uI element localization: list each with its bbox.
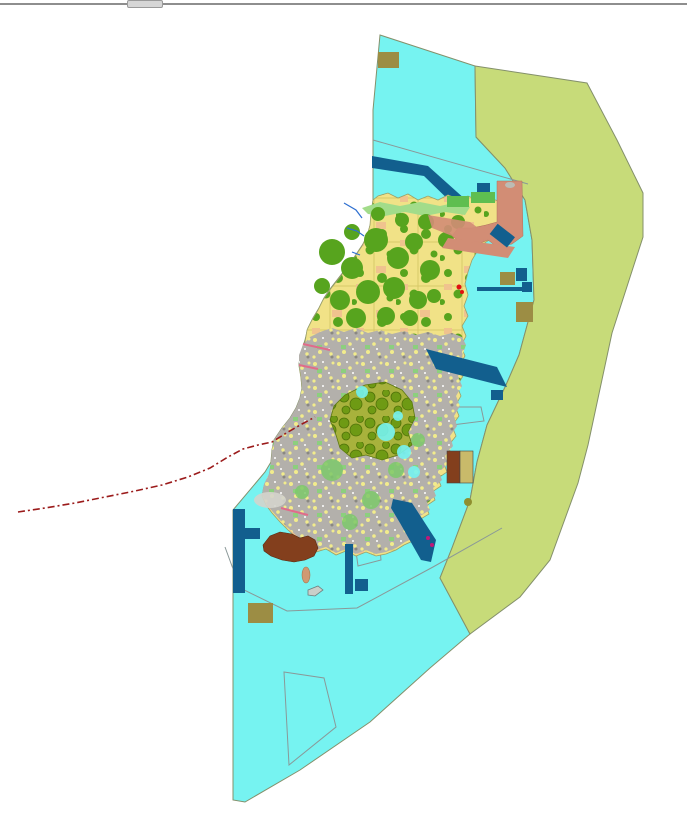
fishpond-inlets xyxy=(397,445,411,459)
park-rect-b xyxy=(471,192,495,203)
green-patches-south xyxy=(411,433,425,447)
tidal-flat-west xyxy=(254,492,286,508)
gray-blob-salmon xyxy=(505,182,515,188)
olive-dot xyxy=(464,498,472,506)
green-patches-south xyxy=(362,491,380,509)
forest-patches-north xyxy=(356,280,380,304)
screenshot-root xyxy=(0,0,687,821)
park-rect-a xyxy=(447,196,469,207)
forest-patches-north xyxy=(330,290,350,310)
harbor-block-e xyxy=(522,282,532,292)
forest-patches-north xyxy=(341,257,363,279)
forest-patches-north xyxy=(427,289,441,303)
harbor-tbar-west-v xyxy=(233,509,245,593)
khaki-rect-top xyxy=(378,52,399,68)
forest-patches-north xyxy=(377,307,395,325)
forest-patches-north xyxy=(371,207,385,221)
map-feature-layer xyxy=(18,35,643,802)
forest-patches-north xyxy=(420,260,440,280)
forest-patches-north xyxy=(395,213,409,227)
green-patches-south xyxy=(321,459,343,481)
harbor-rect-ne xyxy=(477,183,490,192)
forest-patches-north xyxy=(383,277,405,299)
red-markers xyxy=(457,285,462,290)
magenta-markers xyxy=(430,543,434,547)
fishpond-inlets xyxy=(393,411,403,421)
khaki-rect-sw xyxy=(248,603,273,623)
red-markers xyxy=(460,290,464,294)
harbor-strip-s xyxy=(345,544,353,594)
forest-patches-north xyxy=(405,233,423,251)
green-patches-south xyxy=(388,462,404,478)
green-patches-south xyxy=(342,514,358,530)
forest-patches-north xyxy=(346,308,366,328)
harbor-square-s xyxy=(355,579,368,591)
forest-patches-north xyxy=(402,310,418,326)
forest-patches-north xyxy=(409,291,427,309)
forest-patches-north xyxy=(319,239,345,265)
khaki-rect-e1 xyxy=(500,272,515,285)
green-patches-south xyxy=(295,485,309,499)
khaki-rect-e2 xyxy=(516,302,533,322)
forest-patches-north xyxy=(387,247,409,269)
magenta-markers xyxy=(426,536,430,540)
map-canvas[interactable] xyxy=(0,0,687,821)
fishpond-inlets xyxy=(356,386,368,398)
forest-patches-north xyxy=(364,228,388,252)
harbor-rect-e xyxy=(516,268,527,281)
facility-box-brown xyxy=(447,451,460,483)
harbor-rect-east-small xyxy=(491,390,503,400)
harbor-tbar-west-arm xyxy=(245,528,260,539)
fishpond-inlets xyxy=(377,423,395,441)
forest-patches-north xyxy=(314,278,330,294)
stream-1 xyxy=(344,203,362,218)
facility-box-khaki xyxy=(460,451,473,483)
tan-islet xyxy=(302,567,310,583)
fishpond-inlets xyxy=(408,466,420,478)
